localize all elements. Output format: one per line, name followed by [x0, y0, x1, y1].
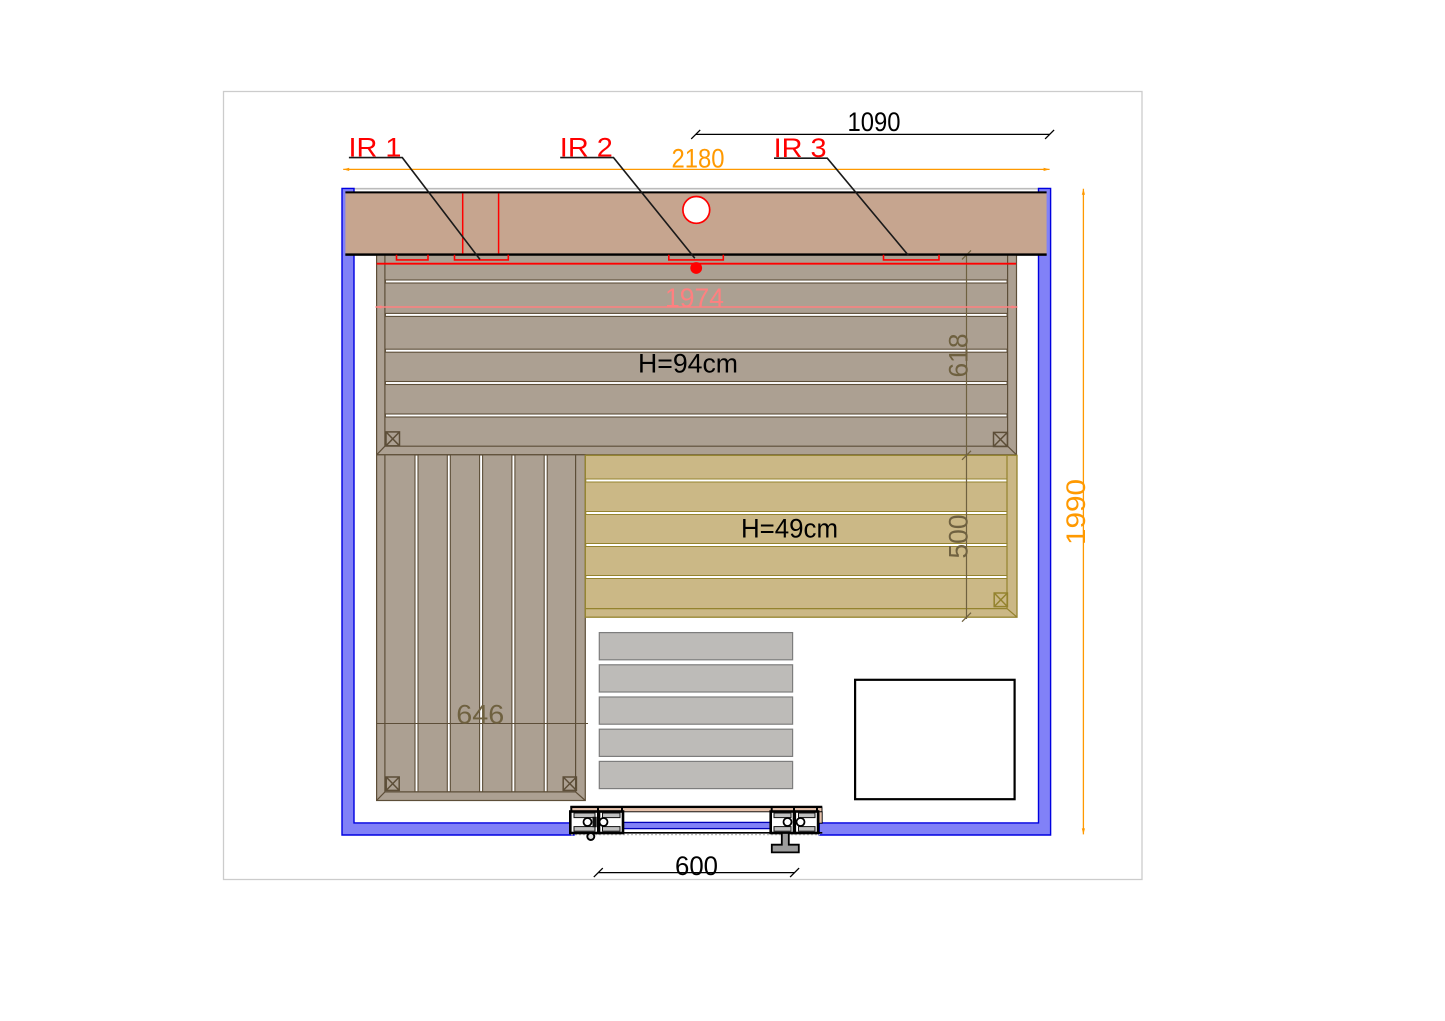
svg-text:H=49cm: H=49cm — [741, 514, 838, 544]
svg-text:1090: 1090 — [848, 107, 901, 137]
svg-text:2180: 2180 — [672, 144, 725, 174]
svg-text:H=94cm: H=94cm — [638, 349, 738, 379]
svg-text:500: 500 — [944, 515, 974, 559]
svg-text:1990: 1990 — [1061, 479, 1091, 545]
svg-text:600: 600 — [675, 851, 718, 881]
svg-text:618: 618 — [944, 334, 974, 378]
svg-text:1974: 1974 — [665, 283, 724, 313]
svg-text:646: 646 — [456, 700, 504, 730]
